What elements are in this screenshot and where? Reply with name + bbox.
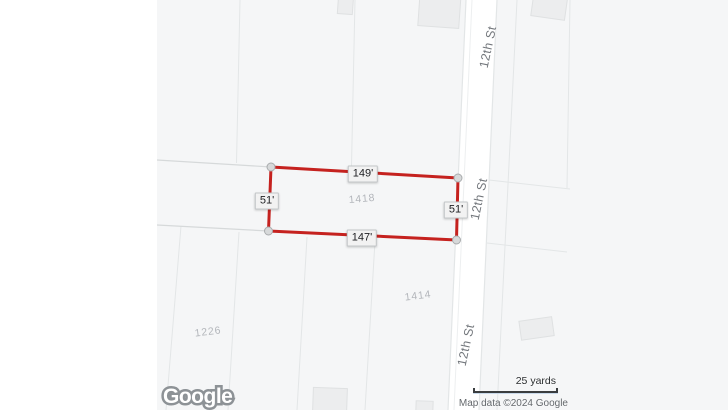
scale-control: 25 yards (473, 375, 558, 393)
building (418, 0, 461, 28)
map-canvas[interactable]: 12th St 12th St 12th St 1418 1414 1226 1… (0, 0, 728, 410)
measurement-label-top: 149' (348, 166, 378, 183)
google-logo[interactable]: Google (163, 385, 232, 409)
building (337, 0, 353, 15)
measurement-label-left: 51' (255, 193, 279, 210)
map-layer (0, 0, 728, 410)
building (312, 387, 347, 410)
measurement-label-bottom: 147' (347, 230, 377, 247)
vertex-handle[interactable] (454, 174, 462, 182)
scale-label: 25 yards (473, 375, 556, 387)
vertex-handle[interactable] (265, 227, 273, 235)
map-edge-blank (0, 0, 157, 410)
building (416, 401, 433, 410)
scale-bar (473, 388, 558, 393)
measurement-label-right: 51' (444, 202, 468, 219)
parcel-number-1418: 1418 (348, 192, 376, 206)
building (519, 317, 554, 340)
vertex-handle[interactable] (453, 236, 461, 244)
map-attribution: Map data ©2024 Google (459, 398, 568, 409)
vertex-handle[interactable] (267, 163, 275, 171)
